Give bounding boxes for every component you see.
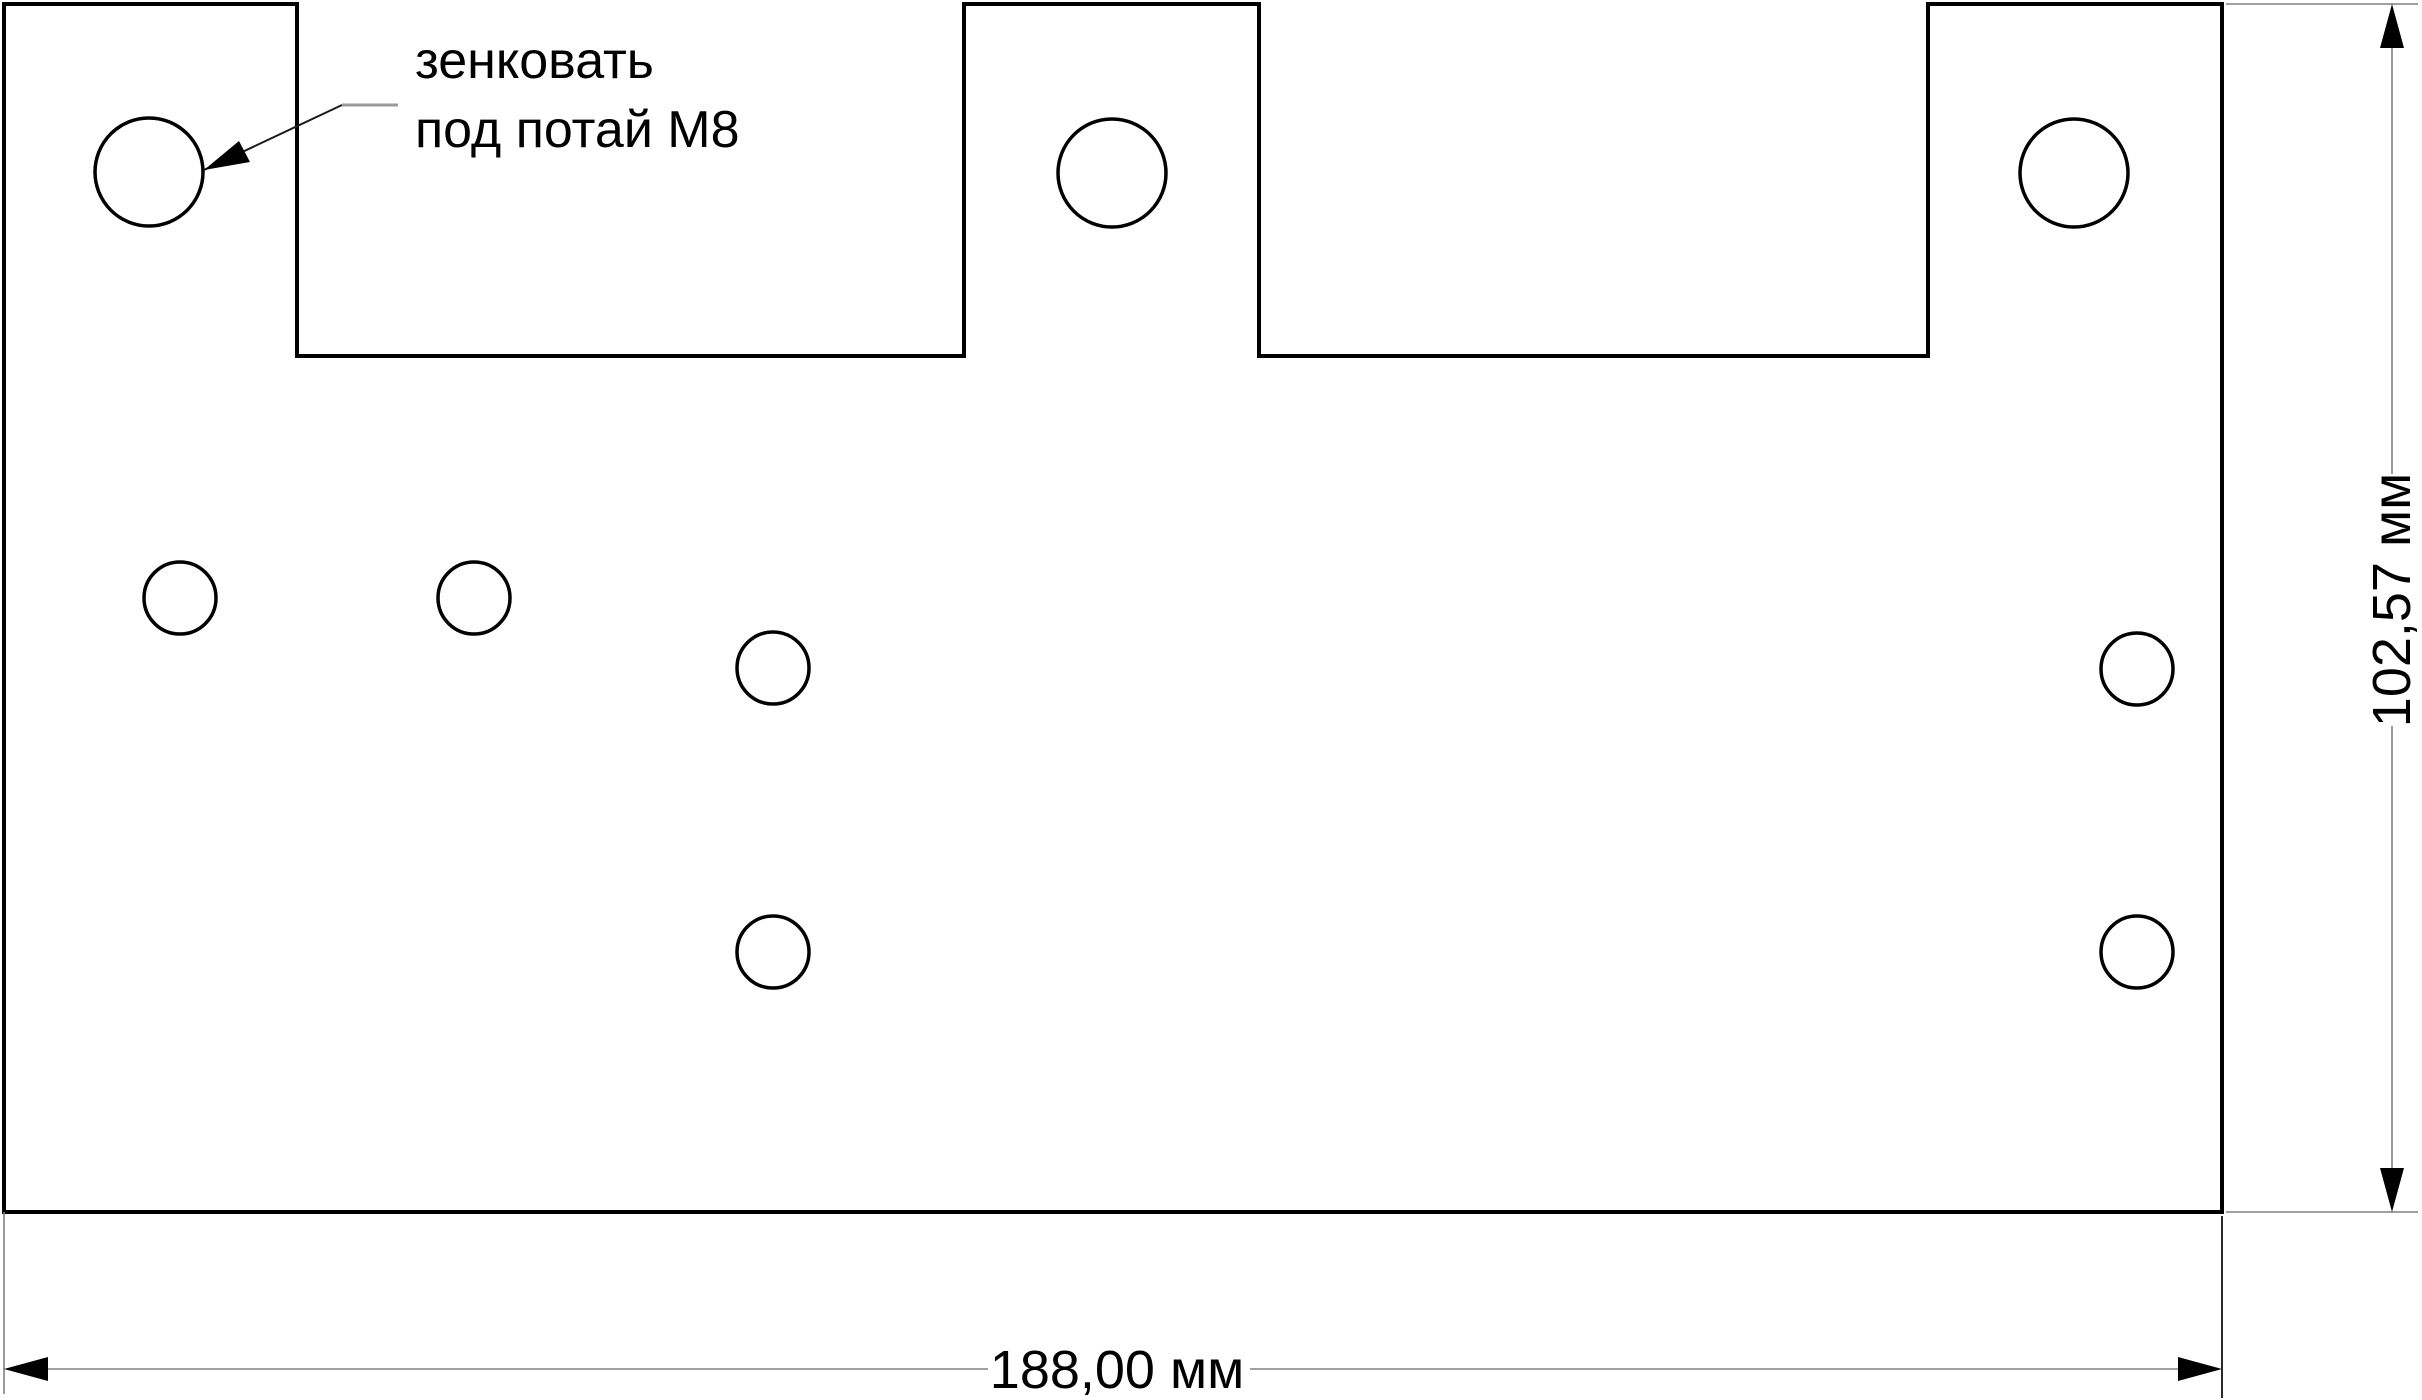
dim-arrowhead-right-icon — [2178, 1357, 2222, 1381]
technical-drawing: зенковать под потай М8 188,00 мм 102,57 … — [0, 0, 2422, 1400]
hole-small-left-b — [438, 562, 510, 634]
dim-arrowhead-top-icon — [2380, 4, 2404, 48]
leader-arrowhead-icon — [204, 141, 250, 170]
annotation-line1: зенковать — [415, 32, 654, 90]
part-outline — [4, 4, 2222, 1212]
dimension-height-label: 102,57 мм — [2362, 473, 2422, 727]
hole-large-right — [2020, 119, 2128, 227]
hole-small-right-lower — [2101, 916, 2173, 988]
dim-arrowhead-bottom-icon — [2380, 1168, 2404, 1212]
drawing-canvas: зенковать под потай М8 188,00 мм 102,57 … — [0, 0, 2422, 1400]
hole-small-left-a — [144, 562, 216, 634]
hole-large-middle — [1058, 119, 1166, 227]
hole-small-right-upper — [2101, 633, 2173, 705]
dimension-width-label: 188,00 мм — [990, 1340, 1244, 1400]
hole-small-mid-lower — [737, 916, 809, 988]
dim-arrowhead-left-icon — [4, 1357, 48, 1381]
annotation-line2: под потай М8 — [415, 101, 740, 159]
hole-large-left — [95, 118, 203, 226]
hole-small-mid-upper — [737, 632, 809, 704]
